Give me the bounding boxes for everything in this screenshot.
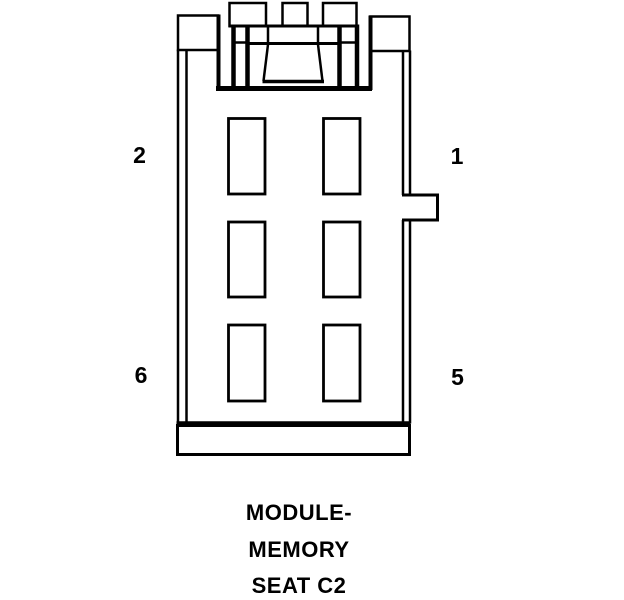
pin-cavity-1 [324,119,361,195]
pin-label-6: 6 [135,362,148,388]
pin-label-2: 2 [133,142,146,168]
top-latch-tabs [230,3,357,26]
caption-line-2: MEMORY [248,537,349,562]
pin-cavity-2 [229,119,266,195]
connector-side-walls [178,50,410,424]
diagram-caption: MODULE- MEMORY SEAT C2 [246,500,352,598]
side-key-tab [402,194,438,222]
connector-outline [177,3,438,455]
pin-label-5: 5 [451,364,464,390]
caption-line-3: SEAT C2 [252,573,347,598]
base-flange [177,424,411,455]
pin-label-1: 1 [451,143,464,169]
caption-line-1: MODULE- [246,500,352,525]
pin-cavity-6 [229,325,266,401]
pin-cavities [229,119,361,402]
latch-tab-left [230,3,267,26]
latch-tab-center [283,3,308,26]
pin-cavity-mid-left [229,222,266,297]
pin-cavity-mid-right [324,222,361,297]
pin-cavity-5 [324,325,361,401]
left-mounting-post [178,15,219,91]
pin-number-labels: 2 1 6 5 [133,142,464,390]
latch-tab-right [323,3,357,26]
connector-pinout-diagram: 2 1 6 5 MODULE- MEMORY SEAT C2 [0,0,624,600]
latch-ramp [263,45,325,82]
latch-assembly [216,25,372,91]
